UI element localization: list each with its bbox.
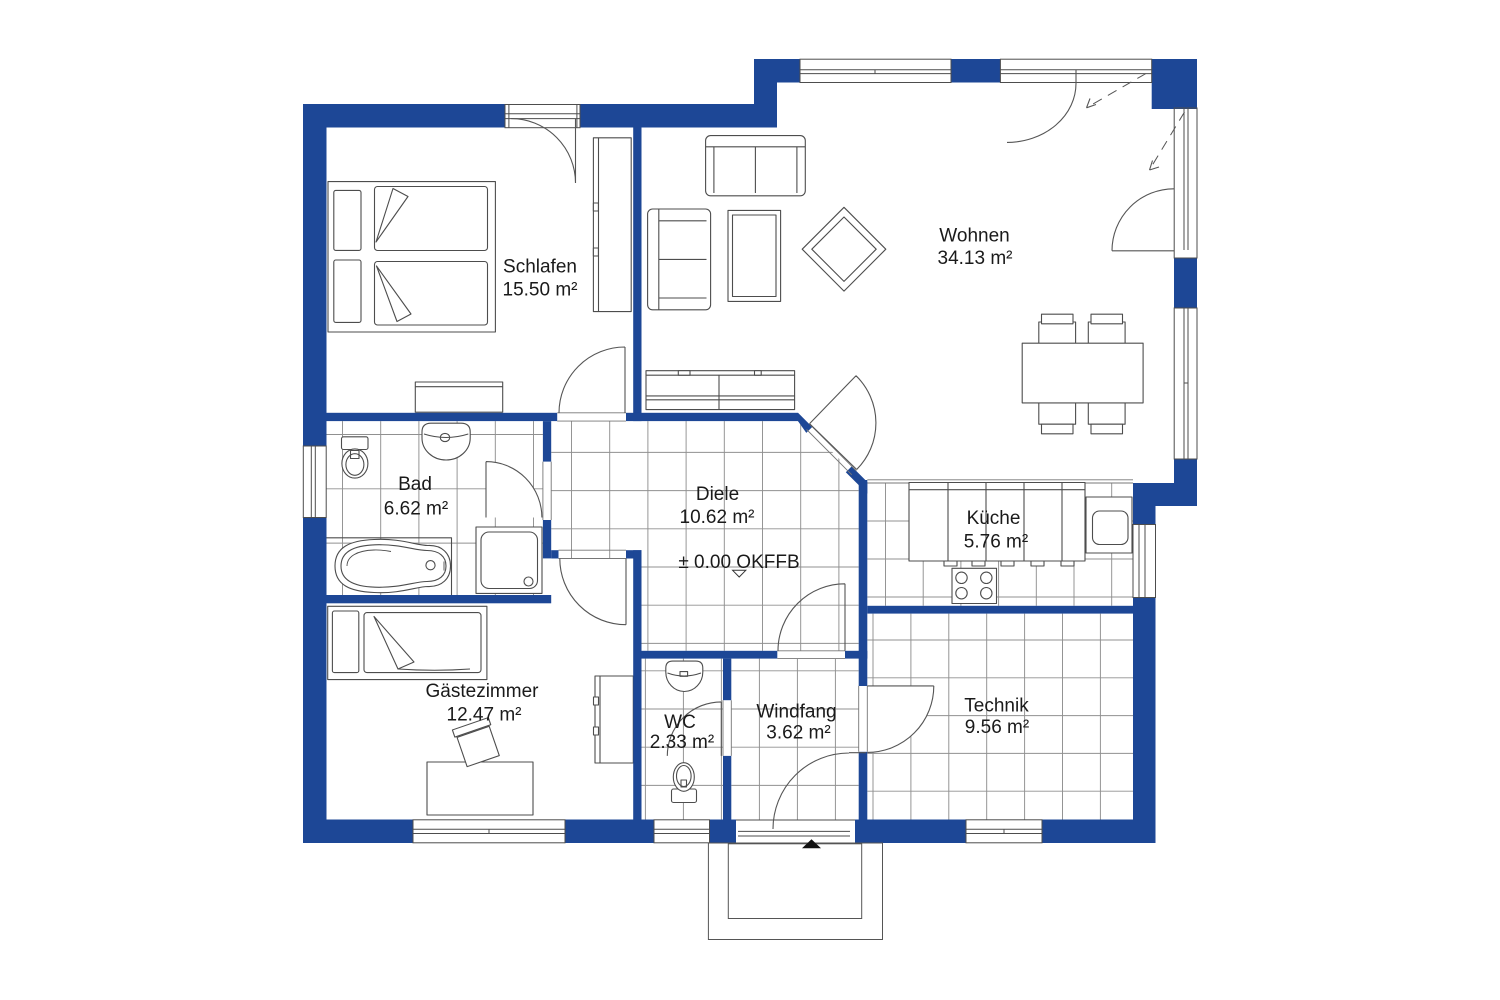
svg-text:Bad: Bad <box>398 474 432 495</box>
svg-text:9.56 m²: 9.56 m² <box>965 717 1029 738</box>
svg-text:12.47 m²: 12.47 m² <box>447 705 522 726</box>
svg-text:Schlafen: Schlafen <box>503 257 577 278</box>
svg-text:Küche: Küche <box>967 508 1021 529</box>
svg-text:Gästezimmer: Gästezimmer <box>426 681 540 702</box>
svg-text:15.50 m²: 15.50 m² <box>503 280 578 301</box>
svg-text:Diele: Diele <box>696 484 739 505</box>
svg-text:2.33 m²: 2.33 m² <box>650 732 714 753</box>
svg-text:6.62 m²: 6.62 m² <box>384 499 448 520</box>
svg-text:± 0.00 OKFFB: ± 0.00 OKFFB <box>678 552 799 573</box>
svg-text:Technik: Technik <box>964 695 1029 716</box>
svg-text:34.13 m²: 34.13 m² <box>938 248 1013 269</box>
svg-text:10.62 m²: 10.62 m² <box>680 507 755 528</box>
svg-text:Windfang: Windfang <box>756 701 836 722</box>
svg-text:Wohnen: Wohnen <box>939 225 1009 246</box>
svg-text:5.76 m²: 5.76 m² <box>964 531 1028 552</box>
svg-text:WC: WC <box>664 712 696 733</box>
svg-text:3.62 m²: 3.62 m² <box>766 722 830 743</box>
